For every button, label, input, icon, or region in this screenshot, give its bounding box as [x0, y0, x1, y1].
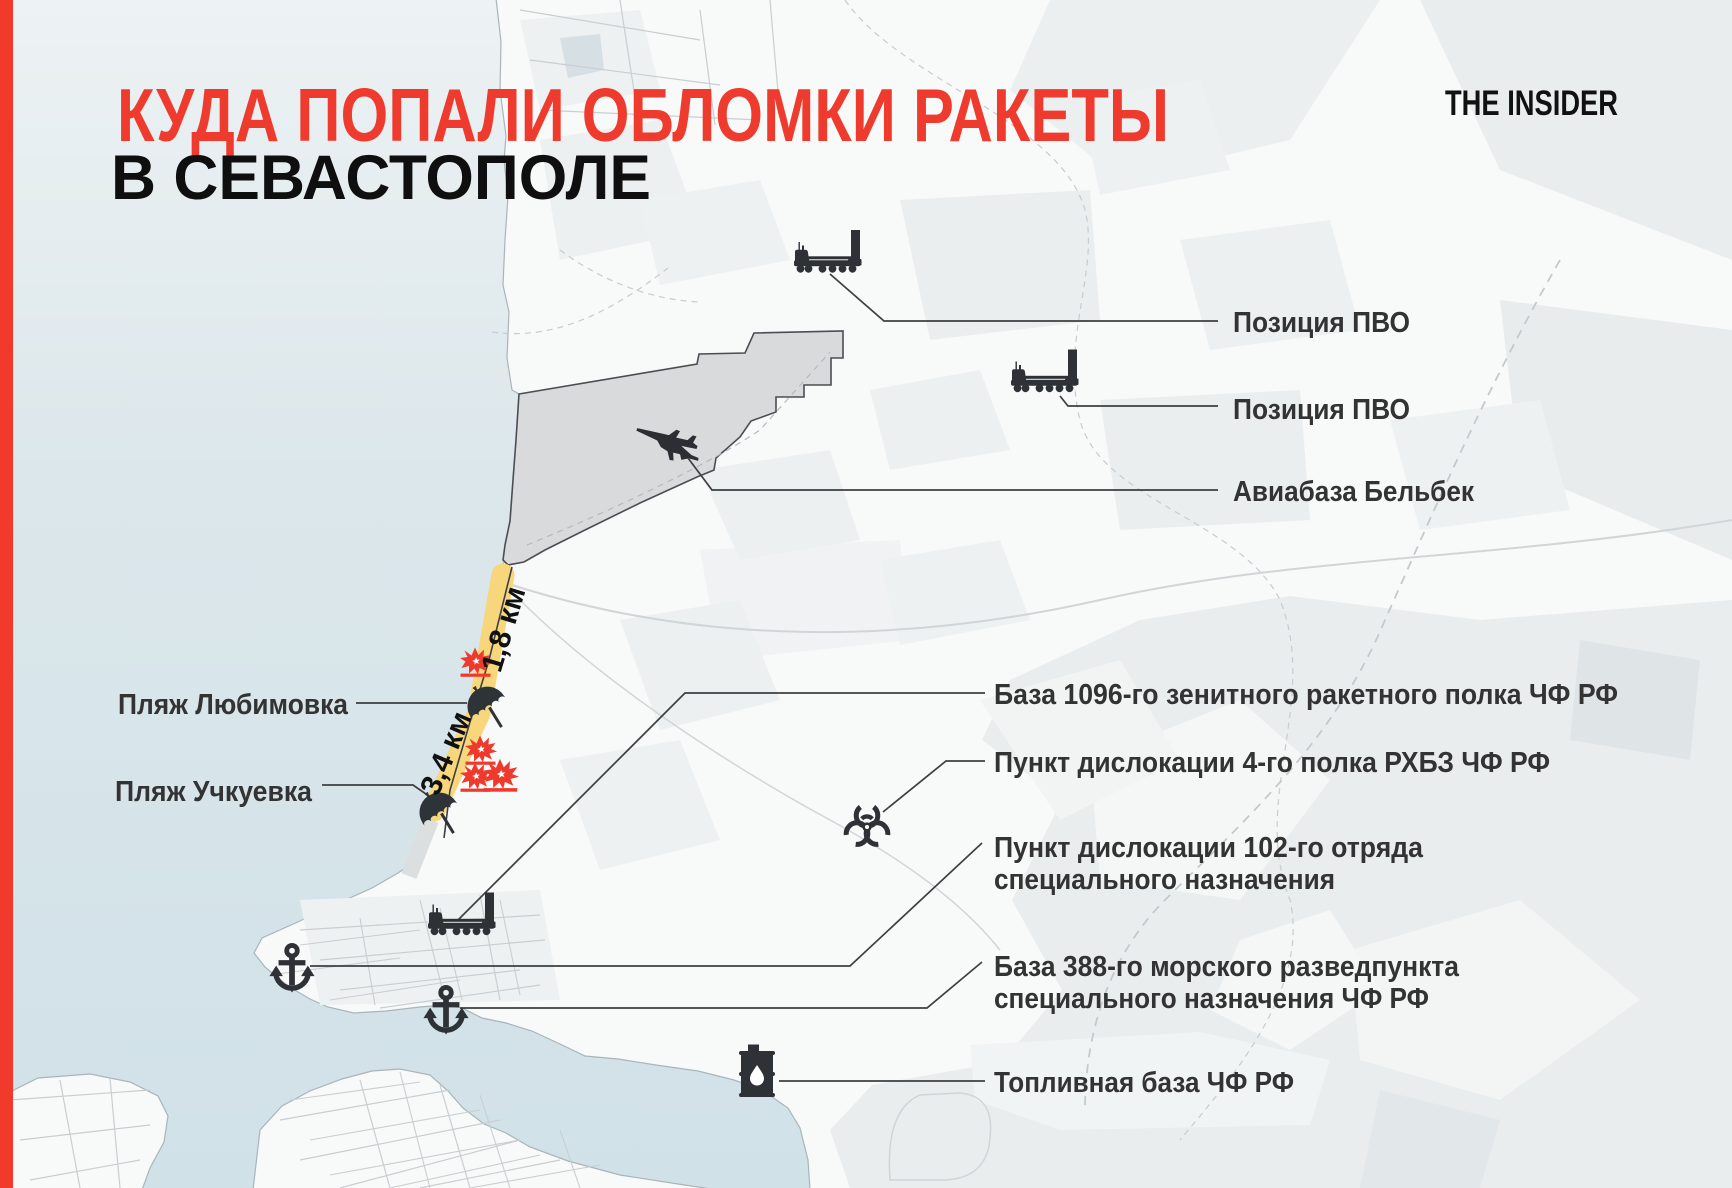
svg-text:THE INSIDER: THE INSIDER: [1445, 84, 1618, 123]
svg-text:В СЕВАСТОПОЛЕ: В СЕВАСТОПОЛЕ: [111, 143, 651, 213]
svg-text:Пункт дислокации 4-го полка РХ: Пункт дислокации 4-го полка РХБЗ ЧФ РФ: [994, 747, 1550, 779]
svg-text:База 388-го морского разведпун: База 388-го морского разведпункта: [994, 951, 1460, 983]
svg-text:Позиция ПВО: Позиция ПВО: [1233, 307, 1410, 339]
svg-text:База 1096-го зенитного ракетно: База 1096-го зенитного ракетного полка Ч…: [994, 679, 1618, 711]
svg-text:Пляж Учкуевка: Пляж Учкуевка: [115, 776, 313, 808]
svg-text:специального назначения: специального назначения: [994, 864, 1335, 896]
svg-text:Топливная база ЧФ РФ: Топливная база ЧФ РФ: [994, 1067, 1294, 1099]
svg-text:Авиабаза Бельбек: Авиабаза Бельбек: [1233, 476, 1474, 508]
svg-text:Пляж Любимовка: Пляж Любимовка: [118, 689, 349, 721]
svg-text:специального назначения ЧФ РФ: специального назначения ЧФ РФ: [994, 983, 1429, 1015]
svg-text:Позиция ПВО: Позиция ПВО: [1233, 394, 1410, 426]
svg-text:Пункт дислокации 102-го отряда: Пункт дислокации 102-го отряда: [994, 832, 1424, 864]
